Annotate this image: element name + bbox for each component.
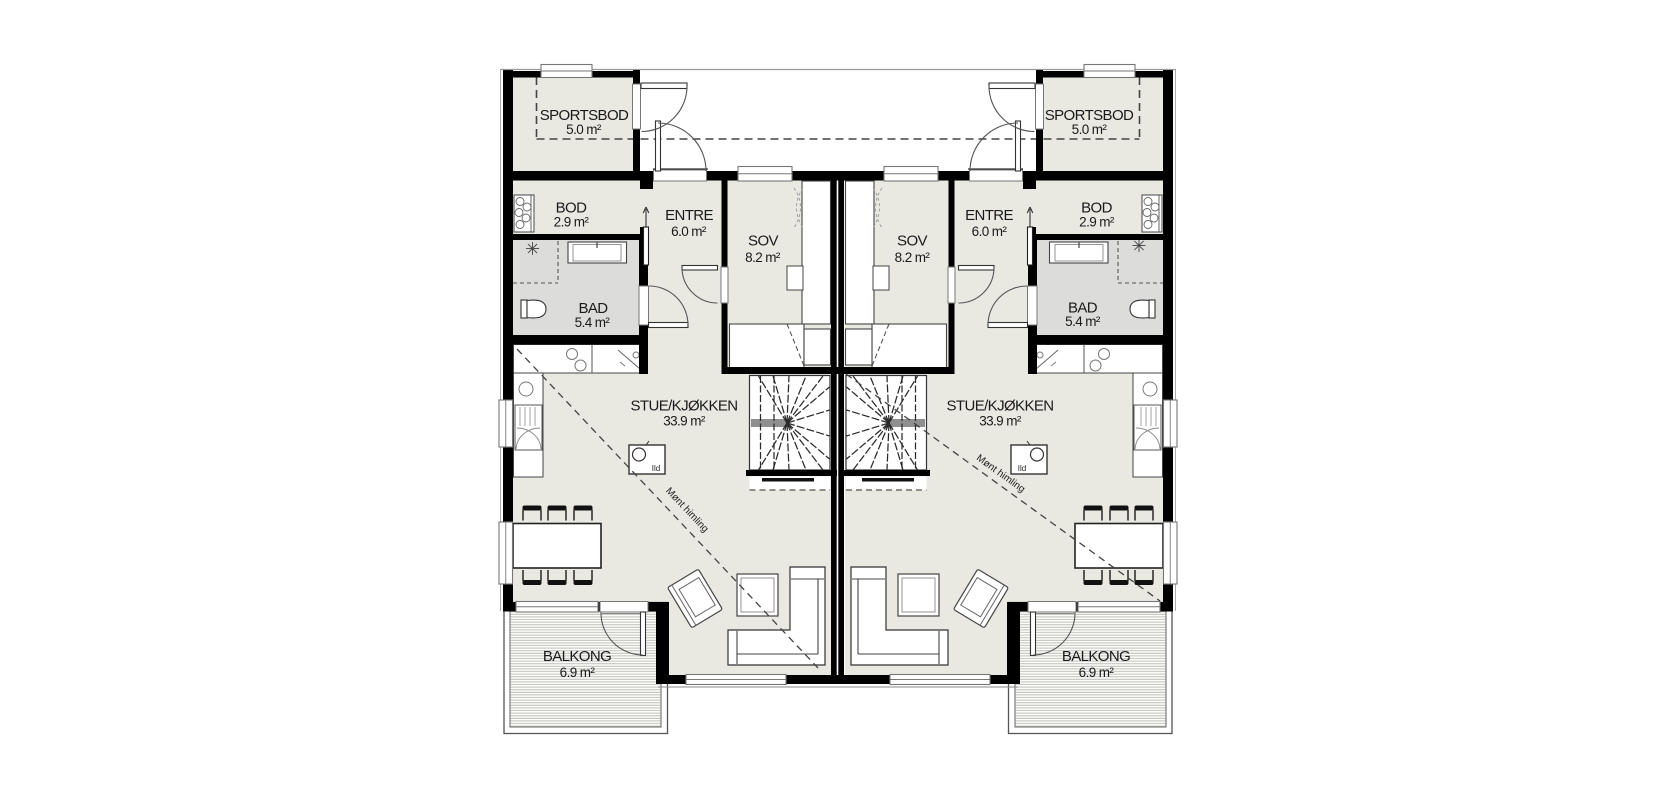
svg-text:Ild: Ild [1018,464,1026,473]
svg-text:5.0 m²: 5.0 m² [1072,122,1108,137]
svg-text:SOV: SOV [897,233,927,250]
svg-text:5.0 m²: 5.0 m² [566,122,602,137]
svg-text:8.2 m²: 8.2 m² [745,250,781,265]
svg-text:33.9 m²: 33.9 m² [663,414,706,429]
svg-text:ENTRE: ENTRE [665,207,713,224]
svg-text:STUE/KJØKKEN: STUE/KJØKKEN [947,398,1054,415]
svg-text:BALKONG: BALKONG [543,648,611,665]
svg-text:8.2 m²: 8.2 m² [895,250,931,265]
svg-text:6.0 m²: 6.0 m² [671,224,707,239]
svg-text:Ild: Ild [652,464,660,473]
svg-text:6.9 m²: 6.9 m² [1079,665,1115,680]
svg-text:33.9 m²: 33.9 m² [979,414,1022,429]
svg-text:6.9 m²: 6.9 m² [560,665,596,680]
svg-text:STUE/KJØKKEN: STUE/KJØKKEN [631,398,738,415]
svg-text:5.4 m²: 5.4 m² [1065,314,1101,329]
svg-text:2.9 m²: 2.9 m² [1079,215,1115,230]
svg-text:6.0 m²: 6.0 m² [972,224,1008,239]
svg-text:BALKONG: BALKONG [1062,648,1130,665]
svg-text:ENTRE: ENTRE [965,207,1013,224]
svg-text:SOV: SOV [748,233,778,250]
svg-text:2.9 m²: 2.9 m² [554,215,590,230]
svg-text:5.4 m²: 5.4 m² [575,315,611,330]
